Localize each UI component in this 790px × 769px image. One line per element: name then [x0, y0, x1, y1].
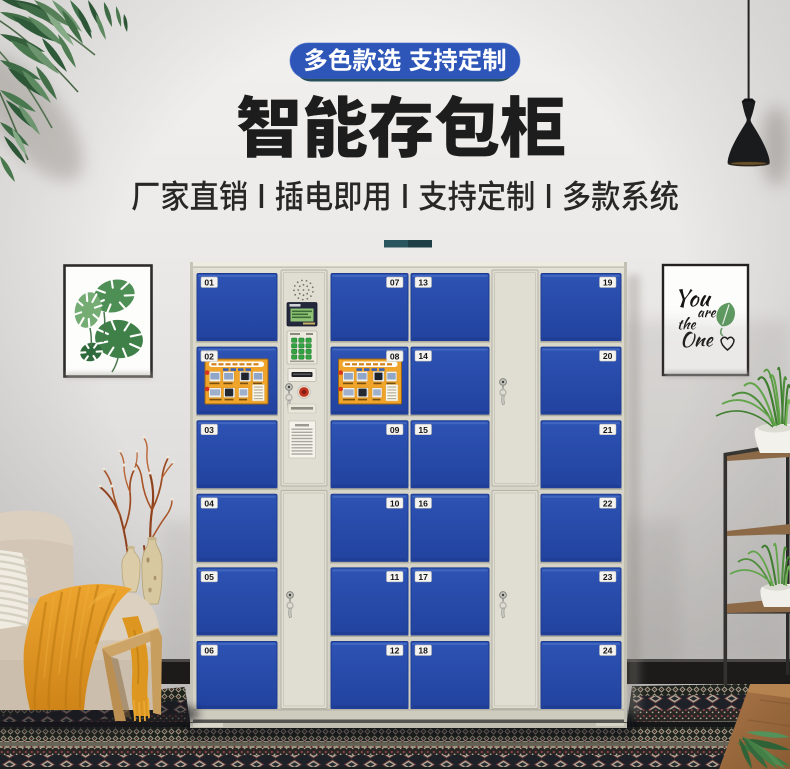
- svg-text:04: 04: [204, 498, 214, 508]
- svg-text:03: 03: [204, 425, 214, 435]
- svg-text:10: 10: [390, 498, 400, 508]
- svg-text:11: 11: [390, 572, 399, 582]
- svg-text:01: 01: [204, 278, 214, 288]
- svg-text:18: 18: [418, 646, 428, 656]
- svg-text:09: 09: [390, 425, 400, 435]
- svg-text:12: 12: [390, 646, 400, 656]
- svg-text:05: 05: [204, 572, 214, 582]
- svg-text:02: 02: [204, 352, 214, 362]
- svg-text:22: 22: [603, 498, 613, 508]
- svg-text:13: 13: [418, 278, 428, 288]
- svg-text:16: 16: [418, 498, 428, 508]
- svg-text:15: 15: [418, 425, 428, 435]
- svg-text:21: 21: [603, 425, 613, 435]
- svg-text:20: 20: [603, 351, 613, 361]
- svg-text:23: 23: [603, 572, 613, 582]
- svg-text:17: 17: [418, 572, 428, 582]
- svg-text:14: 14: [418, 351, 428, 361]
- svg-text:24: 24: [603, 646, 613, 656]
- svg-text:19: 19: [603, 278, 613, 288]
- svg-text:07: 07: [390, 278, 400, 288]
- svg-text:06: 06: [204, 646, 214, 656]
- svg-text:08: 08: [390, 352, 400, 362]
